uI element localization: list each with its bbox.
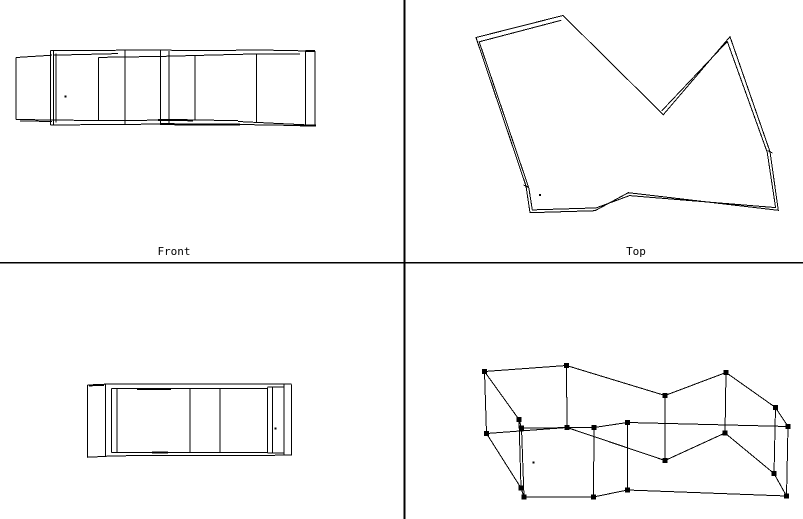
viewport-splitters [0,0,803,519]
control-point-handle[interactable] [663,458,668,463]
wireframe-edge [774,408,776,474]
wireframe-edge [87,456,113,457]
wireframe-edge [485,372,487,434]
top-view-inner-outline [479,20,775,210]
wireframe-edge [787,427,789,497]
viewport-perspective[interactable] [482,363,791,500]
control-point-handle[interactable] [625,420,630,425]
control-point-handle[interactable] [565,425,570,430]
wireframe-edge [257,50,306,51]
wireframe-edge [89,385,104,386]
pivot-dot [64,96,66,98]
control-point-handle[interactable] [723,431,728,436]
viewport-label-front: Front [157,246,190,257]
control-point-handle[interactable] [724,370,729,375]
viewport-splitter-horizontal[interactable] [0,262,803,264]
wireframe-edge [51,124,161,125]
wireframe-edge [54,54,119,56]
drawing-canvas [0,0,803,519]
wireframe-edge [20,121,52,122]
control-point-handle[interactable] [625,488,630,493]
pivot-dot [274,427,276,429]
pivot-dot [533,461,535,463]
control-point-handle[interactable] [564,363,569,368]
control-point-handle[interactable] [522,495,527,500]
control-point-handle[interactable] [663,393,668,398]
control-point-handle[interactable] [784,494,789,499]
wireframe-edge [210,54,257,55]
cad-app-window: Front Top [0,0,803,519]
control-point-handle[interactable] [517,417,522,422]
viewport-front[interactable] [16,50,316,126]
viewport-splitter-vertical[interactable] [404,0,406,519]
control-point-handle[interactable] [482,369,487,374]
wireframe-edge [99,56,162,57]
wireframe-edge [161,55,210,56]
viewport-top[interactable] [476,16,778,213]
control-point-handle[interactable] [519,486,524,491]
wireframe-edge [594,428,595,498]
control-point-handle[interactable] [592,425,597,430]
pivot-dot [539,194,541,196]
wireframe-edge [210,50,257,51]
control-point-handle[interactable] [786,424,791,429]
wireframe-edge [195,120,238,121]
control-point-handle[interactable] [772,471,777,476]
control-point-handle[interactable] [591,495,596,500]
control-point-handle[interactable] [773,405,778,410]
control-point-handle[interactable] [484,431,489,436]
viewport-side[interactable] [87,384,291,458]
wireframe-edge [113,455,292,456]
wireframe-edge [725,373,726,434]
control-point-handle[interactable] [519,426,524,431]
wireframe-edge [157,50,212,51]
wireframe-edge [567,366,568,428]
wireframe-edge [16,120,100,121]
viewport-label-top: Top [626,246,646,257]
wireframe-edge [16,55,52,57]
perspective-top-face [485,366,789,429]
perspective-bottom-face [487,428,787,498]
top-view-outer-outline [476,16,778,213]
